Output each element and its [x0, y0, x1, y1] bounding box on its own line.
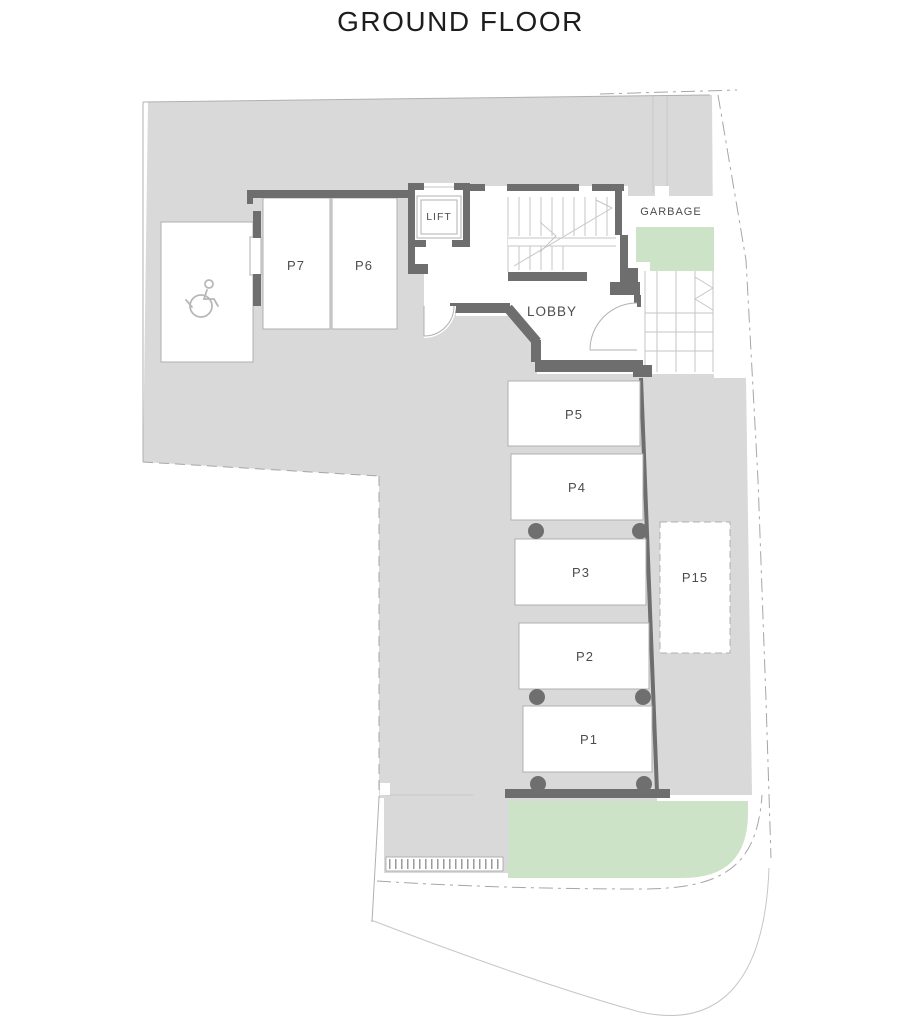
lift-label: LIFT	[426, 211, 452, 223]
parking-label-p3: P3	[572, 565, 590, 580]
parking-label-p6: P6	[355, 258, 373, 273]
parking-label-p2: P2	[576, 649, 594, 664]
parking-label-p1: P1	[580, 732, 598, 747]
lobby-label: LOBBY	[527, 304, 577, 319]
parking-label-p7: P7	[287, 258, 305, 273]
parking-space-p15: P15	[660, 522, 730, 653]
parking-label-p15: P15	[682, 570, 708, 585]
column	[635, 689, 651, 705]
floor-plan-drawing: P7 P6	[0, 0, 921, 1024]
column	[632, 523, 648, 539]
parking-space-p6: P6	[332, 198, 397, 329]
column	[529, 689, 545, 705]
column	[528, 523, 544, 539]
parking-label-p4: P4	[568, 480, 586, 495]
parking-space-p7: P7	[263, 198, 330, 329]
parking-space-p3: P3	[515, 539, 646, 605]
parking-space-p5: P5	[508, 381, 640, 446]
floor-plan-page: GROUND FLOOR P7 P6	[0, 0, 921, 1024]
street-curb	[371, 868, 769, 1015]
garbage-label: GARBAGE	[640, 206, 701, 218]
parking-space-p4: P4	[511, 454, 643, 520]
column	[636, 776, 652, 792]
lawn-area	[508, 801, 748, 878]
parking-space-p2: P2	[519, 623, 649, 689]
parking-label-p5: P5	[565, 407, 583, 422]
column	[530, 776, 546, 792]
parking-space-p1: P1	[523, 706, 652, 772]
window-opening	[250, 237, 261, 275]
